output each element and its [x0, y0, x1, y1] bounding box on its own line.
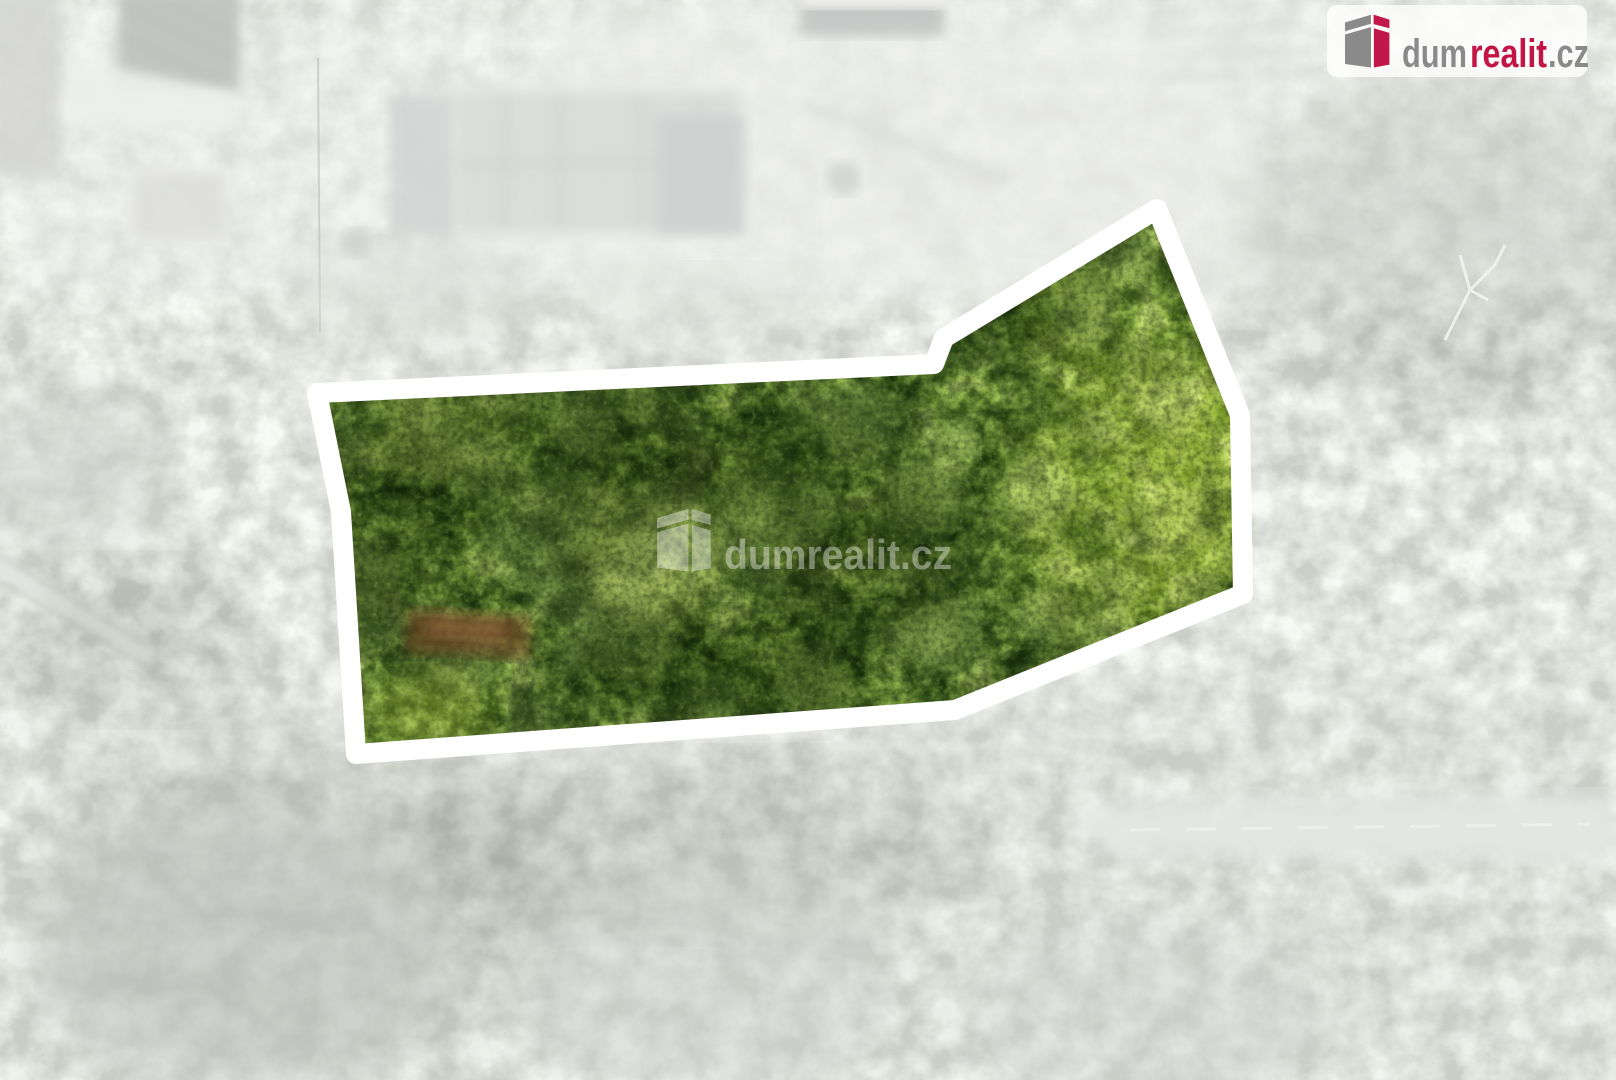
svg-text:dum: dum	[1402, 32, 1467, 76]
svg-text:.cz: .cz	[1548, 32, 1589, 76]
svg-text:realit: realit	[1470, 32, 1547, 76]
svg-text:dumrealit.cz: dumrealit.cz	[724, 531, 952, 578]
